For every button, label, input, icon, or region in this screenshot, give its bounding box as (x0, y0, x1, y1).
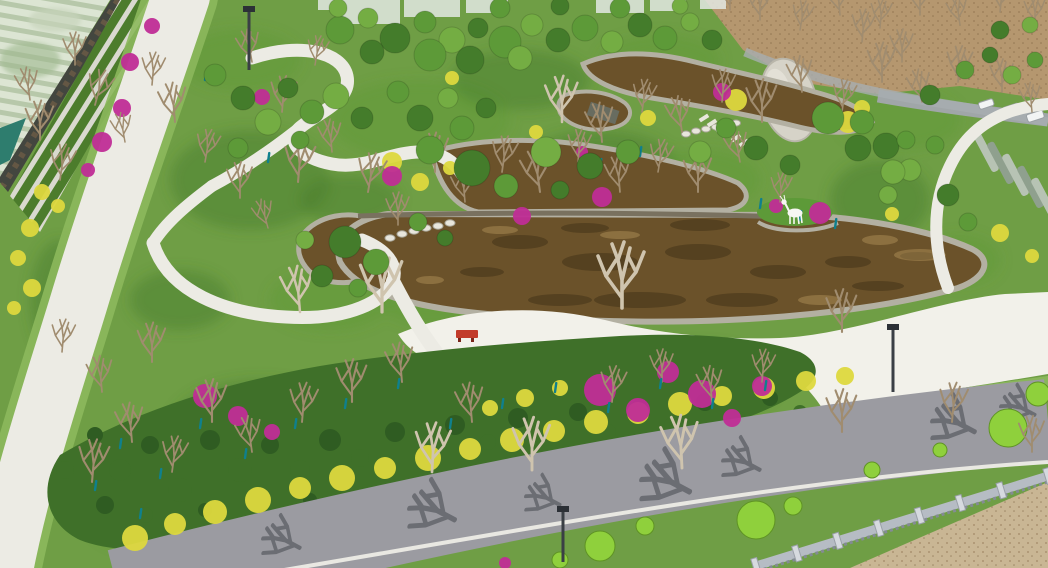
aerial-park-photo: Aerial drone photograph of a newly lands… (0, 0, 1048, 568)
tree-canopy (780, 155, 800, 175)
algae-patch (665, 244, 731, 260)
tree-canopy (702, 30, 722, 50)
algae-patch (528, 294, 592, 306)
tree-stake (398, 379, 399, 388)
bush (141, 436, 159, 454)
tree-canopy (300, 100, 324, 124)
tree-stake (835, 219, 836, 228)
tree-canopy (438, 88, 458, 108)
bougainvillea (626, 398, 650, 422)
bougainvillea (592, 187, 612, 207)
yellow-shrub (836, 367, 854, 385)
yellow-shrub (796, 371, 816, 391)
tree-canopy (1027, 52, 1043, 68)
algae-patch (492, 235, 548, 249)
tree-canopy (628, 13, 652, 37)
algae-patch (706, 293, 778, 307)
stepping-stone (433, 223, 443, 229)
stepping-stone (692, 128, 701, 134)
algae-patch (561, 223, 609, 233)
tree-canopy (672, 0, 688, 14)
algae-patch (460, 267, 504, 277)
tree-canopy (490, 0, 510, 18)
tree-stake (245, 449, 246, 458)
tree-canopy (551, 0, 569, 15)
tree-stake (345, 399, 346, 408)
tree-canopy (329, 0, 347, 17)
bright-bush (1026, 382, 1048, 406)
lamp-head (557, 506, 569, 512)
bougainvillea (382, 166, 402, 186)
yellow-shrub (374, 457, 396, 479)
tree-canopy (546, 28, 570, 52)
tree-canopy (873, 133, 899, 159)
bush (445, 415, 465, 435)
bush (480, 434, 496, 450)
algae-patch (670, 219, 730, 231)
bush (228, 458, 252, 482)
bush (109, 459, 131, 481)
tree-canopy (577, 153, 603, 179)
tree-canopy (360, 40, 384, 64)
lamp-head (887, 324, 899, 330)
tree-canopy (414, 39, 446, 71)
tree-stake (140, 509, 141, 518)
water-glint (600, 231, 640, 239)
yellow-shrub (329, 465, 355, 491)
tree-canopy (387, 81, 409, 103)
tree-canopy (311, 265, 333, 287)
yellow-shrub (245, 487, 271, 513)
tree-canopy (296, 231, 314, 249)
tree-canopy (959, 213, 977, 231)
tree-canopy (494, 174, 518, 198)
yellow-shrub (203, 500, 227, 524)
bush (168, 478, 192, 502)
bougainvillea (723, 409, 741, 427)
tree-canopy (407, 105, 433, 131)
tree-canopy (351, 107, 373, 129)
yellow-shrub (122, 525, 148, 551)
tree-canopy (363, 249, 389, 275)
yellow-shrub (459, 438, 481, 460)
tree-stake (450, 419, 451, 428)
tree-canopy (610, 0, 630, 18)
bush (56, 461, 74, 479)
tree-canopy (416, 136, 444, 164)
bougainvillea (254, 89, 270, 105)
bush (385, 422, 405, 442)
tree-canopy (937, 184, 959, 206)
tree-canopy (812, 102, 844, 134)
algae-patch (594, 292, 686, 308)
tree-canopy (681, 13, 699, 31)
bush (351, 449, 369, 467)
tree-canopy (468, 18, 488, 38)
yellow-shrub (584, 410, 608, 434)
yellow-shrub (885, 207, 899, 221)
tree-stake (120, 439, 121, 448)
bougainvillea (513, 207, 531, 225)
yellow-shrub (1025, 249, 1039, 263)
tree-canopy (358, 8, 378, 28)
tree-canopy (716, 118, 736, 138)
tree-canopy (456, 46, 484, 74)
algae-patch (750, 265, 806, 279)
algae-patch (825, 256, 871, 268)
tree-canopy (551, 181, 569, 199)
bright-bush (636, 517, 654, 535)
stepping-stone (397, 231, 407, 237)
tree-canopy (926, 136, 944, 154)
water-glint (416, 276, 444, 284)
yellow-shrub (482, 400, 498, 416)
tree-canopy (897, 131, 915, 149)
yellow-shrub (51, 199, 65, 213)
yellow-shrub (445, 71, 459, 85)
bougainvillea (264, 424, 280, 440)
yellow-shrub (164, 513, 186, 535)
tree-stake (160, 469, 161, 478)
tree-canopy (326, 16, 354, 44)
yellow-shrub (289, 477, 311, 499)
tree-stake (200, 419, 201, 428)
tree-stake (712, 399, 713, 408)
tree-canopy (881, 160, 905, 184)
tree-canopy (409, 213, 427, 231)
tree-canopy (349, 279, 367, 297)
tree-canopy (454, 150, 490, 186)
tree-canopy (689, 141, 711, 163)
tree-canopy (329, 226, 361, 258)
bright-bush (933, 443, 947, 457)
tree-canopy (616, 140, 640, 164)
tree-canopy (744, 136, 768, 160)
bright-bush (784, 497, 802, 515)
tree-canopy (850, 110, 874, 134)
bougainvillea (121, 53, 139, 71)
tree-canopy (414, 11, 436, 33)
tree-stake (765, 381, 766, 390)
water-glint (482, 226, 518, 234)
tree-canopy (982, 47, 998, 63)
tree-canopy (1022, 17, 1038, 33)
tree-canopy (920, 85, 940, 105)
tree-canopy (956, 61, 974, 79)
tree-stake (295, 419, 296, 428)
bush (319, 429, 341, 451)
tree-canopy (291, 131, 309, 149)
tree-canopy (476, 98, 496, 118)
yellow-shrub (991, 224, 1009, 242)
yellow-shrub (516, 389, 534, 407)
bright-bush (552, 552, 568, 568)
tree-canopy (991, 21, 1009, 39)
lamp-head (243, 6, 255, 12)
tree-canopy (879, 186, 897, 204)
tree-canopy (521, 14, 543, 36)
tree-stake (268, 153, 269, 162)
building (700, 0, 726, 9)
yellow-shrub (529, 125, 543, 139)
yellow-shrub (21, 219, 39, 237)
tree-canopy (572, 15, 598, 41)
water-glint (862, 235, 898, 245)
tree-stake (660, 379, 661, 388)
tree-canopy (1003, 66, 1021, 84)
tree-stake (760, 199, 761, 208)
bush (200, 430, 220, 450)
tree-canopy (531, 137, 561, 167)
stepping-stone (445, 220, 455, 226)
tree-canopy (845, 135, 871, 161)
tree-canopy (380, 23, 410, 53)
tree-canopy (228, 138, 248, 158)
yellow-shrub (34, 184, 50, 200)
tree-canopy (450, 116, 474, 140)
tree-stake (95, 481, 96, 490)
algae-patch (852, 281, 904, 291)
bougainvillea (144, 18, 160, 34)
bush (569, 403, 587, 421)
tree-canopy (255, 109, 281, 135)
park-scene (0, 0, 1048, 568)
tree-stake (502, 399, 503, 408)
bright-bush (585, 531, 615, 561)
bright-bush (864, 462, 880, 478)
bougainvillea (769, 199, 783, 213)
tree-canopy (231, 86, 255, 110)
tree-canopy (601, 31, 623, 53)
tree-canopy (508, 46, 532, 70)
yellow-shrub (7, 301, 21, 315)
yellow-shrub (411, 173, 429, 191)
tree-stake (608, 403, 609, 412)
bright-bush (737, 501, 775, 539)
tree-stake (555, 383, 556, 392)
tree-canopy (437, 230, 453, 246)
tree-canopy (204, 64, 226, 86)
stepping-stone (385, 235, 395, 241)
bush (96, 496, 114, 514)
bougainvillea (809, 202, 831, 224)
tree-canopy (653, 26, 677, 50)
bougainvillea (92, 132, 112, 152)
tree-canopy (323, 83, 349, 109)
yellow-shrub (10, 250, 26, 266)
tree-canopy (278, 78, 298, 98)
bougainvillea (81, 163, 95, 177)
yellow-shrub (23, 279, 41, 297)
